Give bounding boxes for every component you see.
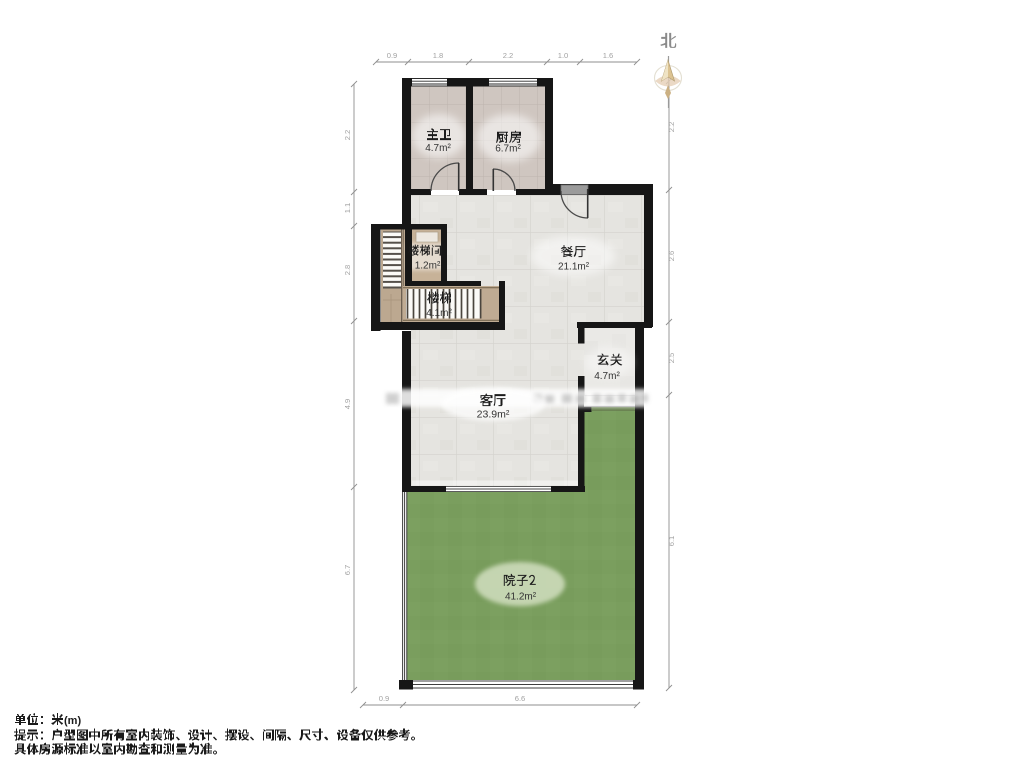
svg-text:0.9: 0.9 (379, 694, 390, 703)
svg-text:4.7m²: 4.7m² (594, 371, 620, 382)
svg-text:41.2m²: 41.2m² (505, 592, 537, 603)
svg-text:6.7m²: 6.7m² (495, 144, 521, 155)
svg-text:2.2: 2.2 (503, 51, 514, 60)
svg-text:2.2: 2.2 (667, 122, 676, 133)
svg-text:1.1: 1.1 (343, 203, 352, 214)
svg-text:1.6: 1.6 (603, 51, 614, 60)
svg-text:2.2: 2.2 (343, 130, 352, 141)
svg-text:2.5: 2.5 (667, 353, 676, 364)
svg-text:23.9m²: 23.9m² (477, 409, 510, 421)
svg-text:4.7m²: 4.7m² (425, 143, 451, 154)
svg-text:0.9: 0.9 (387, 51, 398, 60)
svg-text:1.2m²: 1.2m² (415, 261, 441, 272)
svg-text:1.8: 1.8 (433, 51, 444, 60)
svg-text:(m): (m) (64, 715, 81, 727)
svg-text:6.7: 6.7 (343, 565, 352, 576)
svg-text:2.6: 2.6 (667, 251, 676, 262)
svg-text:6.1: 6.1 (667, 536, 676, 547)
svg-text:1.0: 1.0 (558, 51, 569, 60)
svg-text:4.1m²: 4.1m² (426, 308, 452, 319)
svg-text:4.9: 4.9 (343, 399, 352, 410)
svg-text:6.6: 6.6 (515, 694, 526, 703)
svg-text:2.8: 2.8 (343, 265, 352, 276)
svg-text:21.1m²: 21.1m² (558, 262, 590, 273)
